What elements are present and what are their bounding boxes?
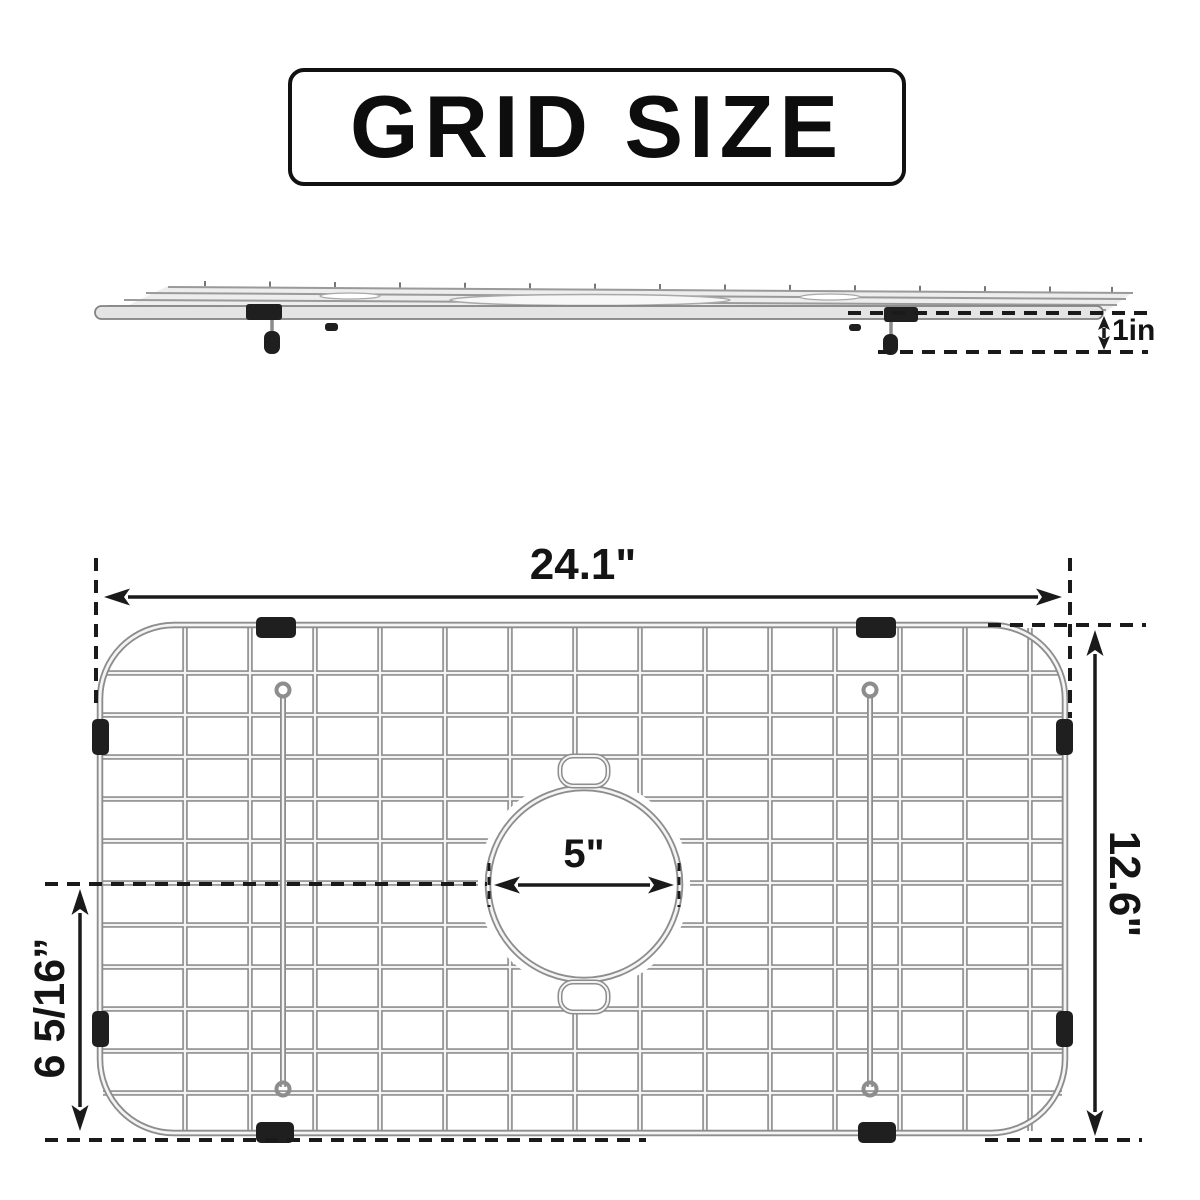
- side-left-foot: [264, 331, 280, 354]
- page-title: GRID SIZE: [350, 76, 844, 178]
- depth-dimension-label: 12.6": [1102, 784, 1146, 984]
- hole-diameter-label: 5": [534, 832, 634, 877]
- width-dimension-label: 24.1": [433, 540, 733, 590]
- side-left-pad: [246, 304, 282, 320]
- rubber-pads: [92, 617, 1073, 1143]
- drain-offset-dimension-label: 6 5/16”: [27, 888, 73, 1128]
- grid-size-diagram: GRID SIZE 24.1" 12.6" 6 5/16” 5" 1in: [0, 0, 1200, 1200]
- top-view-grid: [92, 617, 1073, 1143]
- title-box: GRID SIZE: [288, 68, 906, 186]
- grid-frame: [100, 625, 1065, 1133]
- grid-height-label: 1in: [1112, 314, 1200, 348]
- side-view-illustration: [95, 281, 1148, 355]
